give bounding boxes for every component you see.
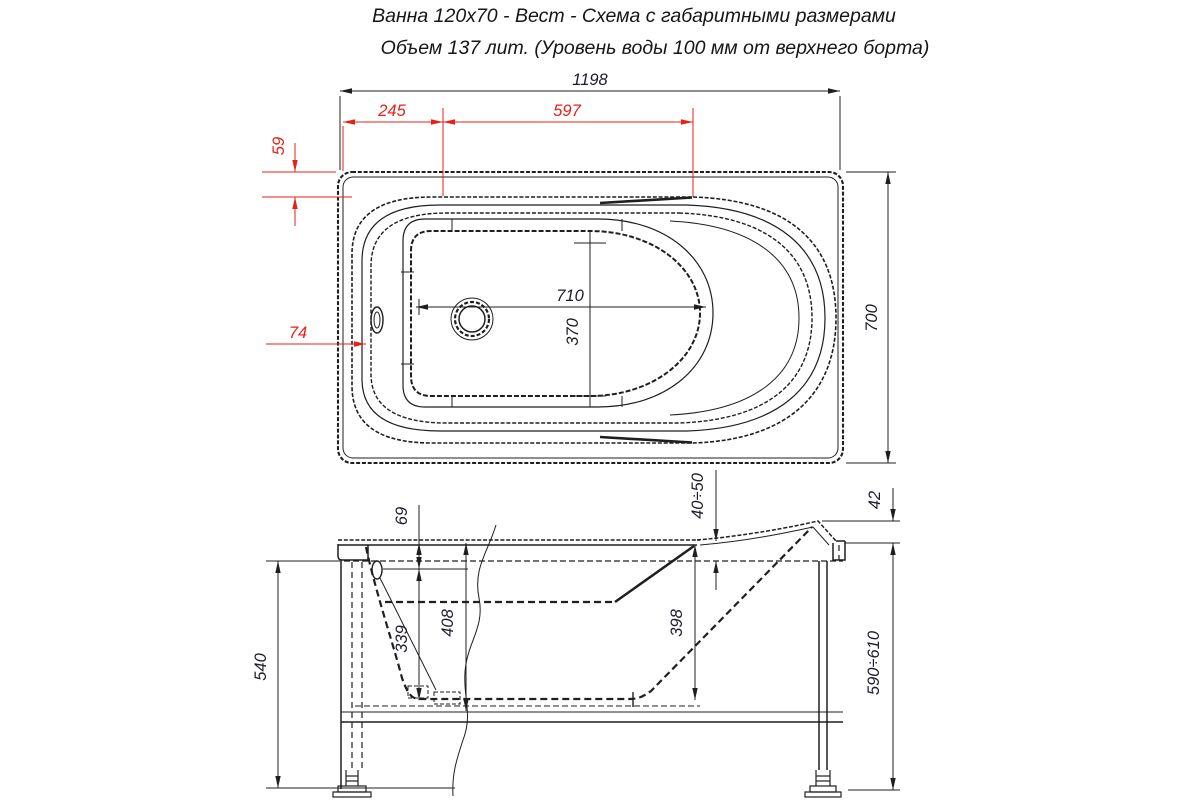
adjustable-foot-right	[805, 770, 841, 797]
rim-contour-inner	[371, 213, 812, 423]
drawing-title: Ванна 120х70 - Вест - Схема с габаритным…	[372, 5, 896, 27]
basin-inner-contour	[411, 231, 700, 396]
dim-rim-width-side: 74	[289, 324, 307, 342]
dim-overall-width: 700	[863, 303, 881, 331]
rim-cap-left	[338, 544, 368, 560]
top-view: 1198 710 370 700 245 597	[262, 71, 896, 463]
backrest-edge	[615, 546, 694, 602]
top-view-dimensions-black: 1198 710 370 700	[340, 71, 896, 463]
dim-edge-to-drain-zone: 245	[377, 102, 406, 120]
dim-drain-zone-length: 597	[553, 102, 581, 120]
basin-outer-contour	[403, 219, 713, 407]
dim-apron-height: 540	[252, 652, 270, 680]
dim-rim-width-top: 59	[270, 137, 288, 155]
dim-basin-length: 710	[556, 287, 584, 305]
headrest-hump-outer	[697, 521, 836, 541]
break-line	[453, 525, 496, 796]
side-view: 540 69 339 408 398 40÷50 42	[252, 470, 900, 797]
title-block: Ванна 120х70 - Вест - Схема с габаритным…	[372, 5, 929, 59]
adjustable-foot-left	[333, 770, 371, 797]
dim-overflow-to-bottom: 339	[393, 625, 411, 653]
tub-inner-profile	[366, 527, 812, 699]
rim-contour-outer	[352, 197, 836, 443]
dim-installed-height: 590÷610	[865, 630, 883, 695]
basin-section-marks	[401, 219, 622, 407]
dim-shell-depth: 408	[439, 608, 457, 636]
waste-fitting	[408, 686, 460, 704]
dim-rim-clearance: 40÷50	[689, 472, 707, 519]
dim-rim-to-overflow: 69	[393, 507, 411, 525]
rim-contour-middle	[362, 205, 825, 431]
overflow-hole-side	[372, 561, 382, 579]
overflow-hole-top	[371, 307, 383, 333]
headrest-arc	[670, 221, 799, 415]
headrest-hump-inner	[700, 527, 829, 545]
rim-fold-bottom	[600, 437, 692, 443]
rim-fold-top	[600, 198, 692, 204]
dim-inner-depth-back: 398	[668, 608, 686, 636]
drain-hole	[451, 298, 493, 340]
dim-headrest-rise: 42	[866, 491, 884, 509]
side-view-dimensions: 540 69 339 408 398 40÷50 42	[252, 470, 900, 790]
dim-basin-width: 370	[564, 317, 582, 345]
technical-drawing: Ванна 120х70 - Вест - Схема с габаритным…	[0, 0, 1200, 800]
drawing-subtitle: Объем 137 лит. (Уровень воды 100 мм от в…	[381, 37, 930, 59]
dim-overall-length: 1198	[572, 71, 608, 89]
